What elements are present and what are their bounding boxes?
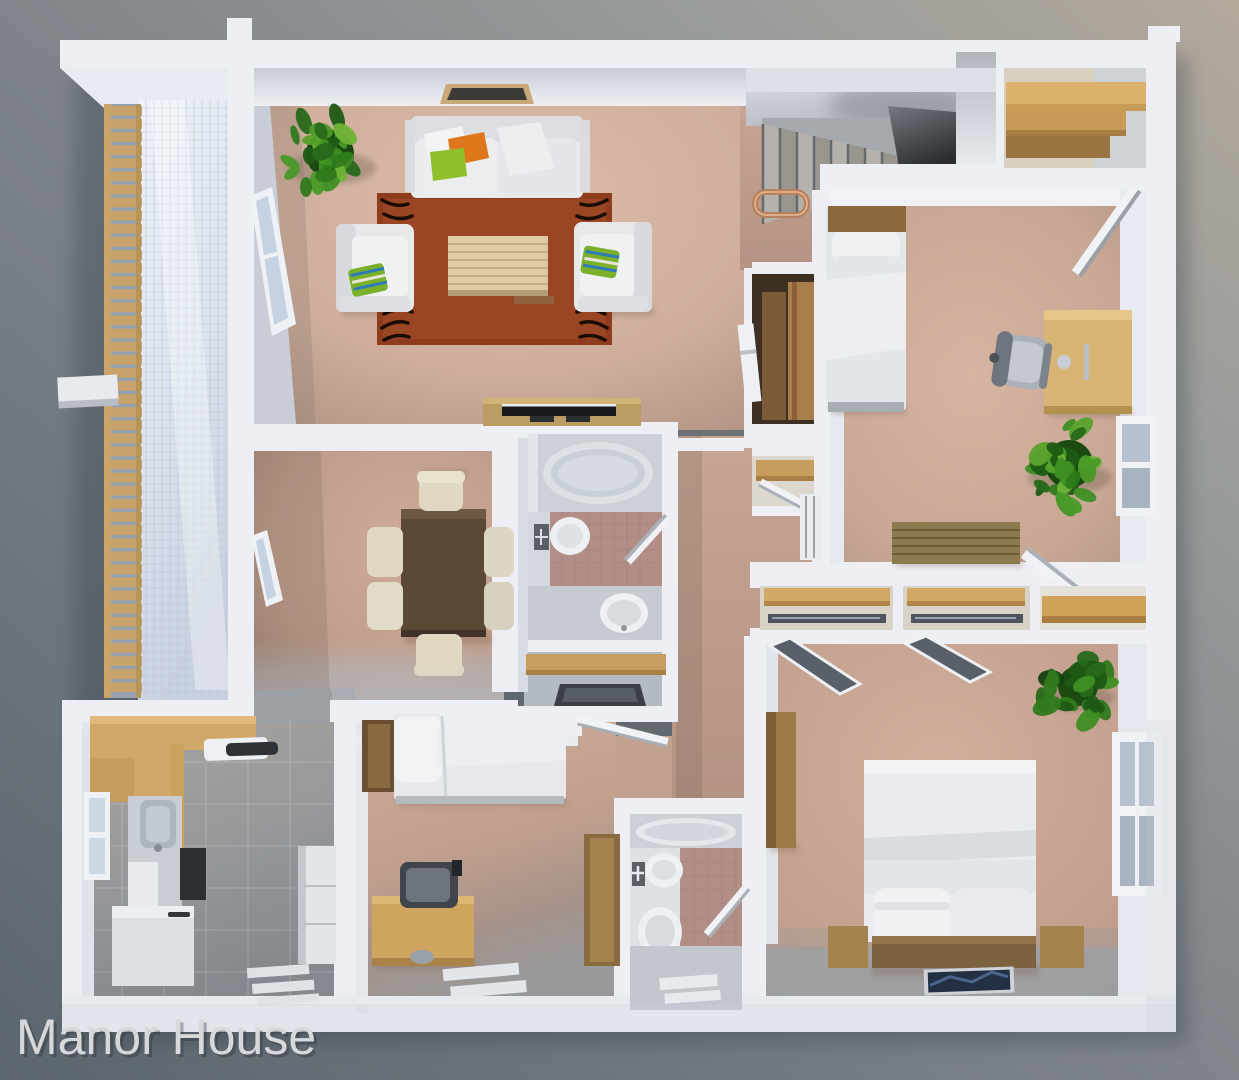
svg-text:Manor House: Manor House	[16, 1009, 316, 1065]
